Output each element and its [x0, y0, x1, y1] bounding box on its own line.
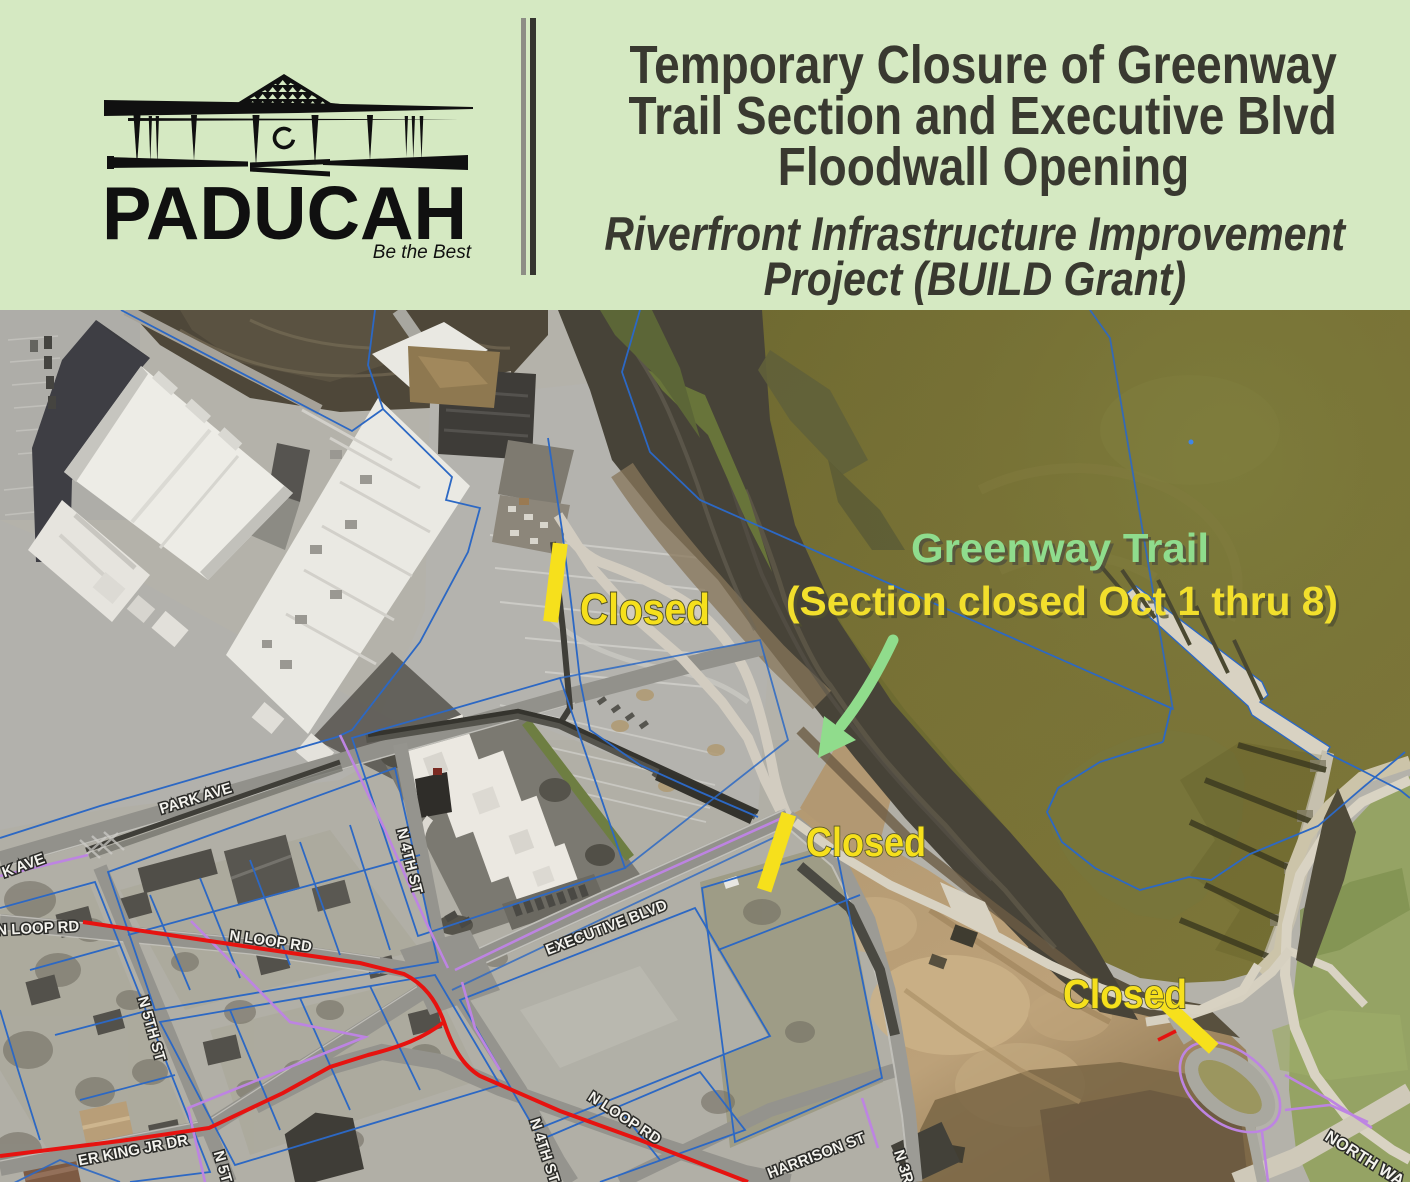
svg-text:Closed: Closed	[806, 819, 926, 865]
svg-text:Closed: Closed	[1063, 971, 1187, 1017]
svg-text:Greenway Trail: Greenway Trail	[911, 525, 1209, 571]
svg-text:(Section closed Oct 1 thru 8): (Section closed Oct 1 thru 8)	[786, 578, 1338, 624]
svg-text:Closed: Closed	[580, 585, 710, 634]
svg-text:Be the Best: Be the Best	[373, 242, 472, 263]
